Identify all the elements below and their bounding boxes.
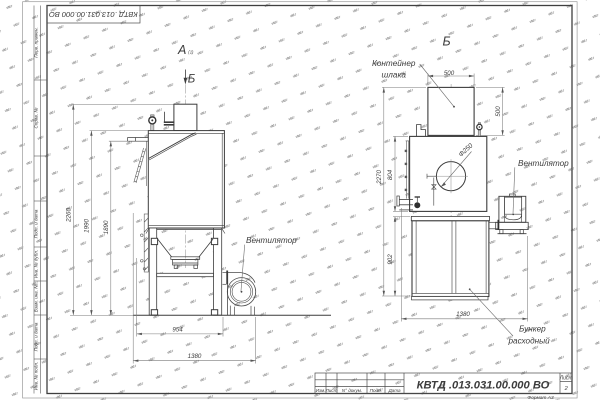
svg-text:КВТД .013.031.00.000 ВО: КВТД .013.031.00.000 ВО	[417, 380, 550, 392]
svg-text:Справ. №: Справ. №	[34, 108, 39, 129]
svg-text:Перв. примен.: Перв. примен.	[34, 27, 39, 58]
svg-text:Вентилятор: Вентилятор	[518, 159, 569, 168]
svg-text:954: 954	[172, 326, 183, 333]
svg-text:2260: 2260	[66, 208, 73, 223]
svg-text:500: 500	[495, 106, 502, 117]
svg-text:А: А	[177, 43, 186, 57]
svg-text:902: 902	[387, 254, 394, 265]
svg-text:1890: 1890	[103, 220, 110, 234]
svg-text:Вентилятор: Вентилятор	[246, 236, 297, 245]
svg-text:1990: 1990	[84, 219, 91, 233]
svg-text:2270: 2270	[376, 170, 383, 185]
svg-text:Подп. и дата: Подп. и дата	[34, 322, 39, 351]
svg-text:Инв. № подл.: Инв. № подл.	[34, 362, 39, 391]
svg-text:Лист: Лист	[325, 388, 338, 393]
svg-text:Б: Б	[188, 74, 196, 86]
svg-text:Контейнер: Контейнер	[372, 59, 416, 68]
svg-text:1380: 1380	[188, 353, 202, 360]
svg-text:КВТД .013.031.00.000 ВО: КВТД .013.031.00.000 ВО	[49, 10, 138, 19]
svg-text:Взам. инв. №: Взам. инв. №	[34, 284, 39, 312]
svg-text:500: 500	[444, 70, 455, 77]
svg-text:Изм.: Изм.	[316, 388, 326, 393]
svg-text:N° докум.: N° докум.	[342, 388, 362, 393]
svg-text:Б: Б	[443, 35, 451, 49]
svg-text:Подп.: Подп.	[370, 388, 382, 393]
svg-text:Дата: Дата	[387, 388, 401, 393]
svg-text:Лист: Лист	[559, 376, 573, 382]
svg-text:Бункер: Бункер	[519, 325, 546, 334]
svg-text:шлака: шлака	[382, 71, 407, 80]
svg-text:Подп. и дата: Подп. и дата	[34, 209, 39, 238]
svg-text:Формат А3: Формат А3	[527, 395, 554, 400]
svg-text:расходный: расходный	[508, 337, 551, 346]
svg-text:(1): (1)	[188, 50, 194, 55]
svg-text:804: 804	[387, 169, 394, 180]
svg-text:1380: 1380	[456, 311, 470, 318]
svg-text:Инв. № дубл.: Инв. № дубл.	[34, 250, 39, 278]
